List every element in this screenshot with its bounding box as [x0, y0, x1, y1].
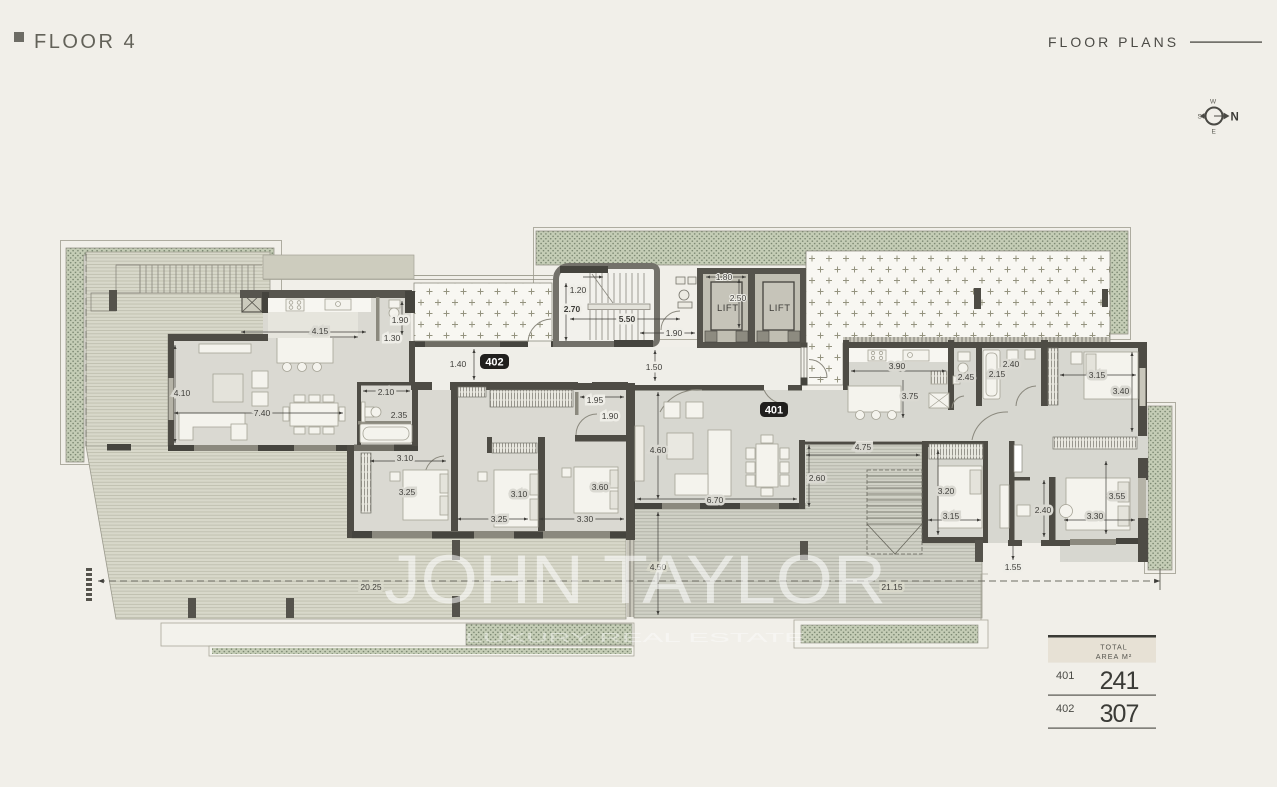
- svg-text:FLOOR 4: FLOOR 4: [34, 31, 137, 53]
- svg-text:2.10: 2.10: [378, 387, 395, 397]
- svg-text:402: 402: [485, 357, 503, 369]
- svg-text:W: W: [1210, 99, 1217, 106]
- svg-text:1.95: 1.95: [587, 395, 604, 405]
- svg-text:2.70: 2.70: [564, 304, 581, 314]
- svg-text:S: S: [1198, 114, 1203, 121]
- svg-text:2.40: 2.40: [1035, 505, 1052, 515]
- svg-text:2.40: 2.40: [1003, 359, 1020, 369]
- svg-text:4.60: 4.60: [650, 445, 667, 455]
- svg-text:LUXURY REAL ESTATE: LUXURY REAL ESTATE: [465, 631, 805, 645]
- svg-text:1.80: 1.80: [716, 272, 733, 282]
- svg-text:3.20: 3.20: [938, 486, 955, 496]
- svg-text:3.75: 3.75: [902, 391, 919, 401]
- svg-text:20.25: 20.25: [360, 582, 382, 592]
- svg-text:3.10: 3.10: [511, 489, 528, 499]
- svg-text:4.10: 4.10: [174, 388, 191, 398]
- svg-text:LIFT: LIFT: [717, 303, 739, 314]
- svg-text:JOHN TAYLOR: JOHN TAYLOR: [384, 541, 886, 618]
- svg-text:401: 401: [765, 405, 783, 417]
- svg-text:3.30: 3.30: [577, 514, 594, 524]
- svg-text:6.70: 6.70: [707, 495, 724, 505]
- svg-text:LIFT: LIFT: [769, 303, 791, 314]
- svg-text:2.35: 2.35: [391, 410, 408, 420]
- svg-text:3.55: 3.55: [1109, 491, 1126, 501]
- svg-text:1.20: 1.20: [570, 285, 587, 295]
- svg-text:3.25: 3.25: [491, 514, 508, 524]
- svg-text:5.50: 5.50: [619, 314, 636, 324]
- svg-text:3.90: 3.90: [889, 361, 906, 371]
- svg-text:N: N: [1231, 112, 1239, 124]
- svg-text:1.40: 1.40: [450, 359, 467, 369]
- svg-text:3.60: 3.60: [592, 482, 609, 492]
- svg-text:1.55: 1.55: [1005, 562, 1022, 572]
- svg-text:401: 401: [1056, 670, 1074, 682]
- svg-text:307: 307: [1100, 700, 1139, 728]
- svg-text:4.15: 4.15: [312, 326, 329, 336]
- svg-text:2.15: 2.15: [989, 369, 1006, 379]
- svg-text:1.90: 1.90: [602, 411, 619, 421]
- svg-text:TOTAL: TOTAL: [1100, 643, 1128, 652]
- svg-text:2.45: 2.45: [958, 372, 975, 382]
- svg-text:FLOOR PLANS: FLOOR PLANS: [1048, 34, 1179, 50]
- svg-text:3.30: 3.30: [1087, 511, 1104, 521]
- svg-text:3.10: 3.10: [397, 453, 414, 463]
- svg-text:1.90: 1.90: [666, 328, 683, 338]
- svg-text:1.50: 1.50: [646, 362, 663, 372]
- svg-text:241: 241: [1100, 667, 1139, 695]
- svg-text:AREA M²: AREA M²: [1096, 652, 1133, 661]
- svg-text:2.50: 2.50: [730, 293, 747, 303]
- svg-text:3.40: 3.40: [1113, 386, 1130, 396]
- svg-text:402: 402: [1056, 703, 1074, 715]
- svg-text:1.30: 1.30: [384, 333, 401, 343]
- svg-text:3.15: 3.15: [1089, 370, 1106, 380]
- svg-text:3.25: 3.25: [399, 487, 416, 497]
- svg-text:2.60: 2.60: [809, 473, 826, 483]
- svg-text:E: E: [1212, 129, 1217, 136]
- svg-text:7.40: 7.40: [254, 408, 271, 418]
- svg-text:4.75: 4.75: [855, 442, 872, 452]
- svg-text:1.90: 1.90: [392, 315, 409, 325]
- svg-text:3.15: 3.15: [943, 511, 960, 521]
